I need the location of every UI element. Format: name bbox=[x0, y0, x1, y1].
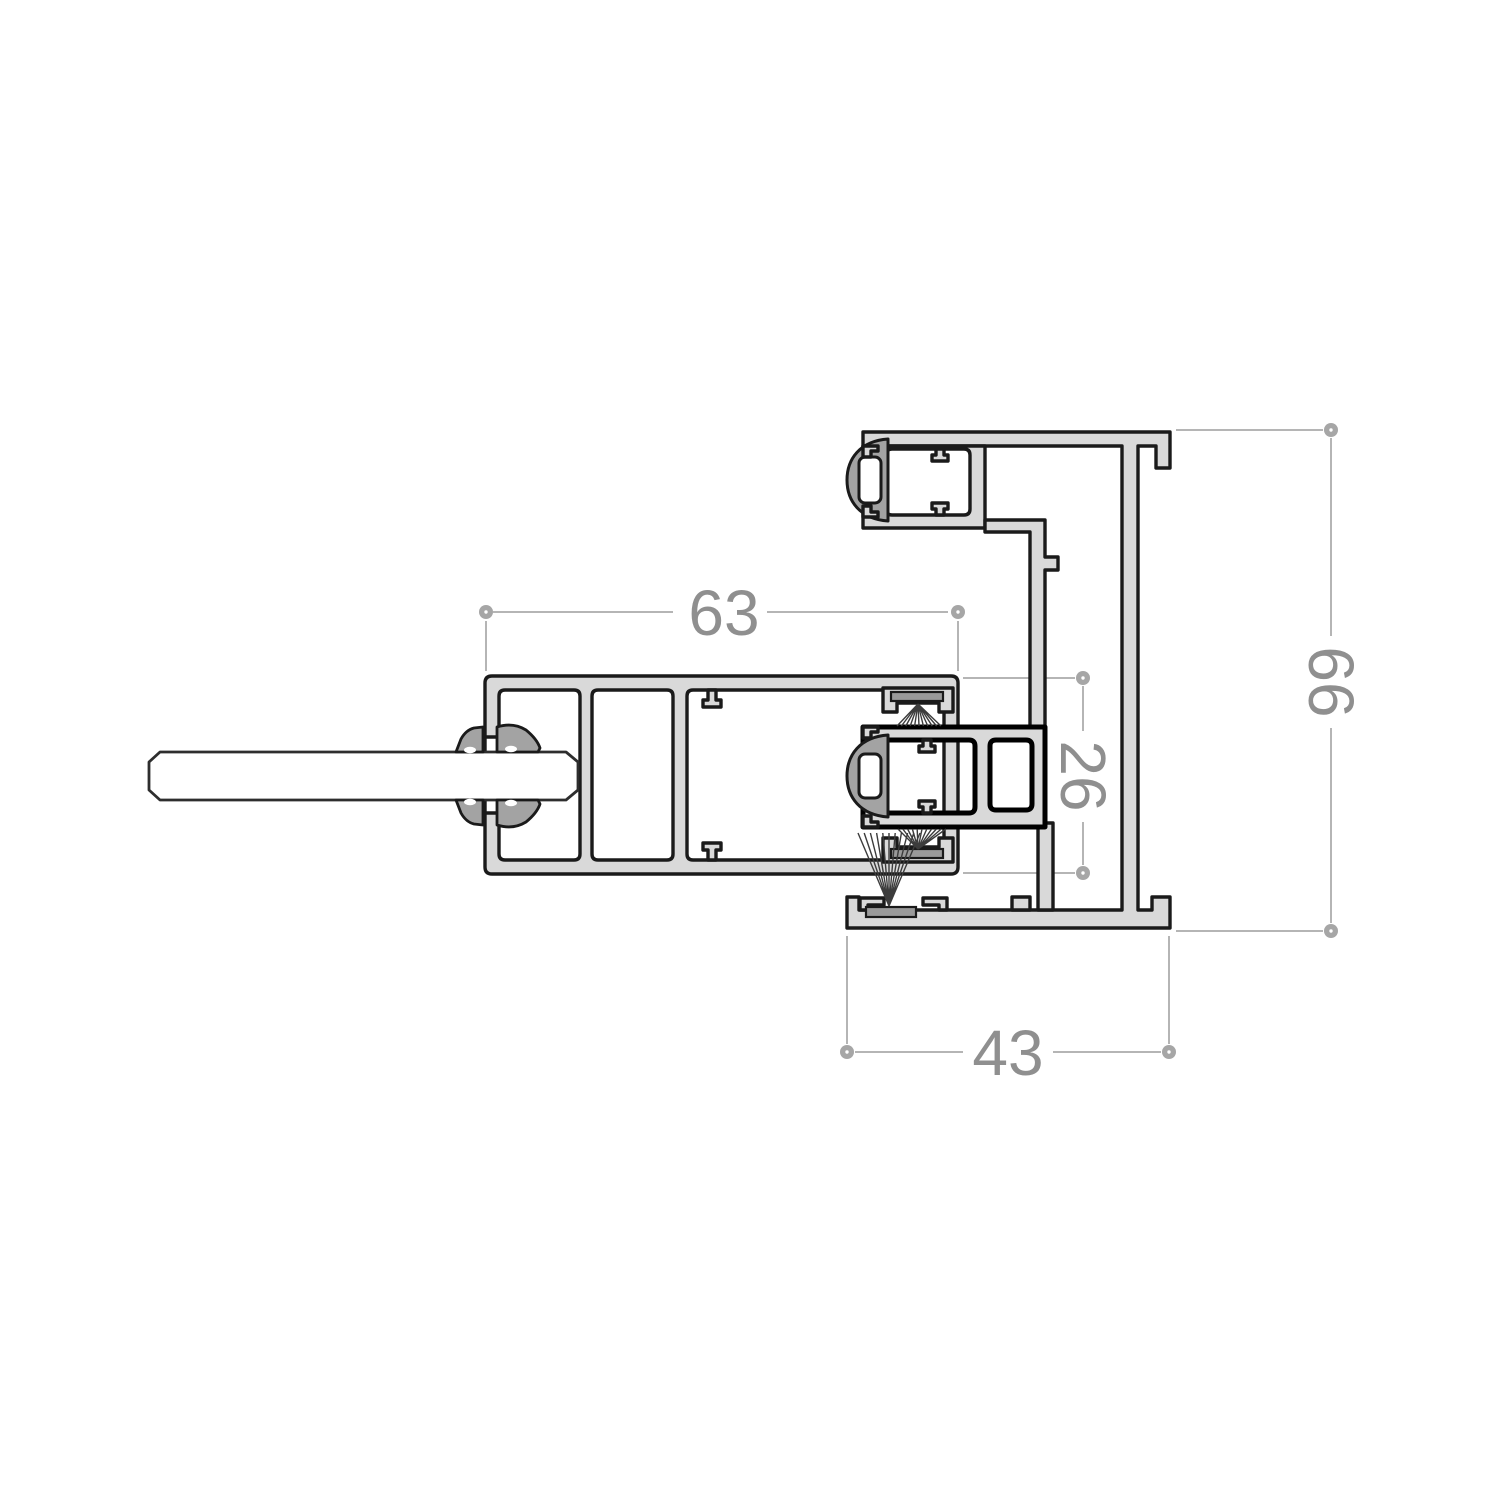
dimension-label-26: 26 bbox=[1047, 740, 1119, 811]
top-glide-bumper bbox=[847, 439, 888, 521]
dimension-43: 43 bbox=[840, 936, 1176, 1089]
dimension-endpoint-core bbox=[1081, 871, 1084, 874]
dimension-63: 63 bbox=[479, 577, 965, 671]
dimension-endpoint-core bbox=[1329, 428, 1332, 431]
track-rail-nub-top bbox=[919, 740, 935, 752]
dimension-label-43: 43 bbox=[972, 1017, 1043, 1089]
glass-panel bbox=[149, 752, 578, 800]
gasket-bottom-right bbox=[497, 800, 540, 827]
gasket-scallop bbox=[505, 746, 517, 752]
sash-nub-bottom bbox=[703, 843, 721, 860]
dimension-endpoint-core bbox=[1329, 929, 1332, 932]
dimension-endpoint-core bbox=[956, 610, 959, 613]
frame-bottom-step-lip bbox=[1012, 897, 1030, 910]
gasket-scallop bbox=[505, 800, 517, 806]
drawing-canvas: 63 66 26 43 bbox=[0, 0, 1501, 1501]
bottom-brush-hook-right bbox=[923, 898, 947, 910]
frame-pocket-nub-top bbox=[932, 449, 948, 461]
frame-pocket-nub-bottom bbox=[932, 503, 948, 515]
dimension-label-63: 63 bbox=[688, 577, 759, 649]
gasket-scallop bbox=[464, 799, 476, 805]
bumper-window bbox=[859, 457, 881, 503]
glass-pane bbox=[149, 752, 578, 800]
dimension-endpoint-core bbox=[845, 1050, 848, 1053]
frame-lower-wall bbox=[1038, 823, 1053, 910]
gasket-scallop bbox=[464, 747, 476, 753]
gasket-top-right bbox=[497, 725, 540, 752]
profile-cross-section-drawing: 63 66 26 43 bbox=[0, 0, 1501, 1501]
track-bumper-window bbox=[859, 754, 881, 798]
bottom-brush-strip bbox=[866, 907, 916, 917]
sash-nub-top bbox=[703, 690, 721, 707]
dimension-label-66: 66 bbox=[1295, 646, 1367, 717]
dimension-66: 66 bbox=[1176, 423, 1367, 938]
dimension-endpoint-core bbox=[484, 610, 487, 613]
dimension-endpoint-core bbox=[1167, 1050, 1170, 1053]
dimension-endpoint-core bbox=[1081, 676, 1084, 679]
track-rail-nub-bottom bbox=[919, 801, 935, 813]
frame-step-wall bbox=[985, 520, 1058, 730]
brush-bristles-upper bbox=[897, 704, 941, 726]
brush-strip-upper bbox=[891, 692, 943, 701]
